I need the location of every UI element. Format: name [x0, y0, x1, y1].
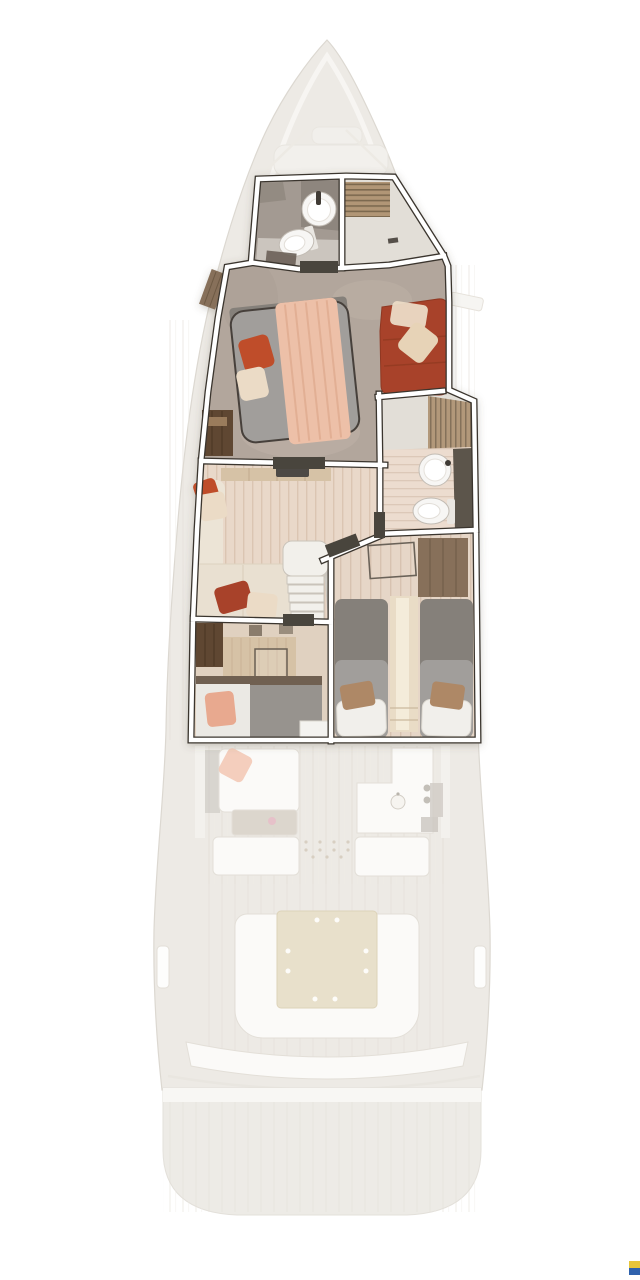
galley-sink [391, 795, 405, 809]
cleat-right [474, 946, 486, 988]
mid-toilet [413, 498, 455, 524]
mid-bathroom-door [374, 512, 385, 538]
vanity-counter [453, 448, 474, 531]
stove-knob-1 [424, 785, 431, 792]
twin-wardrobe [418, 538, 468, 597]
flag-bottom-stripe [629, 1268, 640, 1275]
twin-bed-right [420, 599, 473, 738]
dinette-bench-right [355, 837, 429, 876]
table-decor [268, 817, 276, 825]
salon-coffee-table [232, 810, 297, 835]
guest-pillow-salmon [204, 691, 236, 728]
mid-shower-grate [428, 396, 474, 450]
bow-hatch-panel [312, 127, 362, 144]
yacht-floorplan-image [0, 0, 640, 1280]
shelf [258, 182, 286, 203]
galley-faucet [396, 792, 399, 795]
bow-sun-pad [274, 145, 388, 176]
dinette-bench-left [213, 837, 299, 875]
owner-cabin-door [273, 457, 325, 469]
side-deck-right [452, 265, 475, 403]
salon-sideboard [205, 750, 220, 813]
galley-appliance-1 [430, 783, 443, 817]
guest-cabin-door [283, 614, 314, 626]
floorplan-svg [0, 0, 640, 1280]
flag-icon[interactable] [629, 1261, 640, 1275]
pillow-tan-right [429, 681, 465, 710]
swim-platform-band [163, 1088, 481, 1102]
stove-knob-2 [424, 797, 431, 804]
galley-appliance-2 [421, 817, 438, 832]
swim-platform-teak [163, 1102, 481, 1212]
twin-bed-left [335, 599, 388, 738]
terracotta-sofa [380, 299, 449, 395]
companionway-stairs [283, 541, 328, 619]
shower-teak-grate [344, 182, 390, 217]
guest-wardrobe [196, 623, 223, 667]
sink-faucet [316, 191, 321, 205]
shelf-item-1 [249, 625, 262, 636]
cleat-left [157, 946, 169, 988]
mid-sink-faucet [445, 460, 451, 466]
owner-bed [229, 296, 362, 450]
lounge-pillow-cream-2 [246, 591, 278, 619]
flag-top-stripe [629, 1261, 640, 1268]
cockpit-table [277, 911, 377, 1008]
salon-wall-left [195, 746, 205, 838]
bathroom-door [300, 261, 338, 273]
center-cabinet [390, 596, 418, 732]
